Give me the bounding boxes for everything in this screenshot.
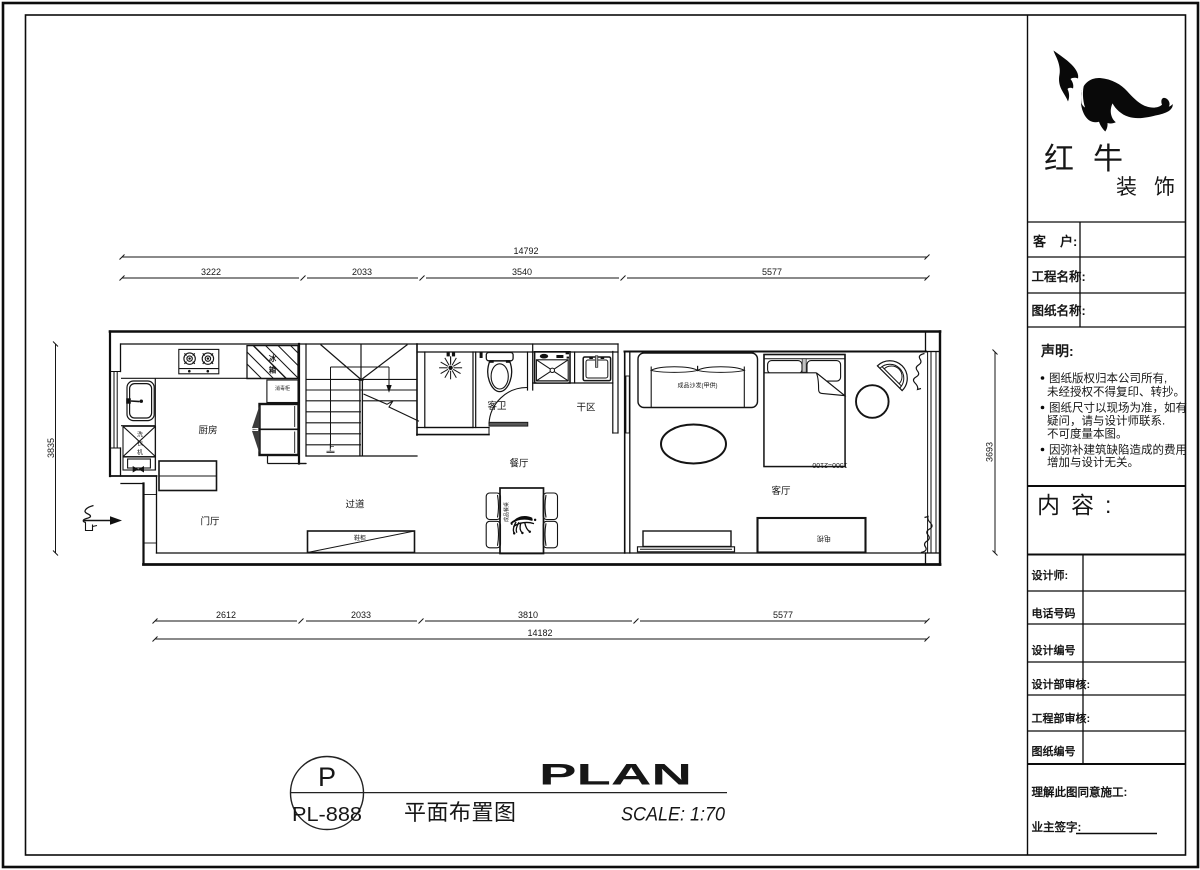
- svg-text:工程名称:: 工程名称:: [1032, 269, 1086, 284]
- svg-text:3540: 3540: [512, 267, 532, 277]
- svg-text:设计编号: 设计编号: [1032, 643, 1076, 657]
- svg-text:2033: 2033: [352, 267, 372, 277]
- svg-text:因弥补建筑缺陷造成的费用: 因弥补建筑缺陷造成的费用: [1049, 443, 1187, 457]
- svg-text:箱: 箱: [269, 365, 277, 375]
- svg-text:声明:: 声明:: [1040, 343, 1074, 359]
- svg-text:5577: 5577: [762, 267, 782, 277]
- svg-text:3835: 3835: [46, 438, 56, 458]
- svg-text:3693: 3693: [985, 442, 995, 462]
- svg-text:上: 上: [326, 443, 335, 453]
- svg-text:设计部审核:: 设计部审核:: [1032, 677, 1091, 691]
- svg-text:消毒柜: 消毒柜: [275, 385, 290, 392]
- svg-text:2033: 2033: [351, 610, 371, 620]
- svg-text:鞋柜: 鞋柜: [354, 534, 366, 542]
- svg-text:PL-888: PL-888: [292, 804, 362, 826]
- svg-text:理解此图同意施工:: 理解此图同意施工:: [1032, 785, 1128, 799]
- svg-text:餐厅: 餐厅: [509, 458, 529, 470]
- svg-text:内容:: 内容:: [1037, 492, 1122, 518]
- svg-text:图纸编号: 图纸编号: [1032, 744, 1076, 758]
- svg-text:门厅: 门厅: [200, 516, 220, 528]
- svg-text:电话号码: 电话号码: [1032, 606, 1076, 620]
- svg-text:厨房: 厨房: [198, 425, 217, 437]
- svg-text:红牛: 红牛: [1044, 143, 1142, 176]
- svg-text:1500=2100: 1500=2100: [812, 461, 847, 468]
- svg-text:业主签字:: 业主签字:: [1032, 820, 1082, 834]
- svg-text:图纸名称:: 图纸名称:: [1032, 303, 1086, 318]
- svg-text:冰: 冰: [269, 353, 277, 363]
- svg-text:机: 机: [137, 449, 143, 457]
- svg-text:客: 客: [1033, 234, 1047, 249]
- svg-text:3222: 3222: [201, 267, 221, 277]
- svg-text:工程部审核:: 工程部审核:: [1032, 711, 1091, 725]
- svg-text:图纸版权归本公司所有,: 图纸版权归本公司所有,: [1049, 371, 1167, 385]
- svg-text:成品餐桌: 成品餐桌: [503, 502, 510, 522]
- svg-text:14182: 14182: [527, 628, 552, 638]
- svg-text:图纸尺寸以现场为准，如有: 图纸尺寸以现场为准，如有: [1049, 401, 1187, 415]
- svg-text:14792: 14792: [513, 246, 538, 256]
- svg-text:装饰: 装饰: [1116, 176, 1192, 199]
- svg-text:3810: 3810: [518, 610, 538, 620]
- svg-text:5577: 5577: [773, 610, 793, 620]
- svg-text:P: P: [318, 762, 336, 792]
- svg-text:增加与设计无关。: 增加与设计无关。: [1047, 455, 1139, 469]
- svg-text:客卫: 客卫: [487, 400, 507, 412]
- svg-text:电视: 电视: [817, 535, 831, 544]
- svg-text:2612: 2612: [216, 610, 236, 620]
- svg-text:衣: 衣: [137, 440, 143, 448]
- svg-text:SCALE: 1:70: SCALE: 1:70: [621, 804, 725, 826]
- svg-text:不可度量本图。: 不可度量本图。: [1047, 427, 1128, 441]
- svg-text:过道: 过道: [345, 499, 365, 511]
- svg-text:未经授权不得复印、转抄。: 未经授权不得复印、转抄。: [1047, 385, 1185, 399]
- svg-text:设计师:: 设计师:: [1032, 568, 1069, 582]
- svg-text:成品沙发(甲供): 成品沙发(甲供): [678, 382, 718, 390]
- svg-text:PLAN: PLAN: [539, 759, 692, 792]
- svg-text:干区: 干区: [576, 403, 596, 414]
- svg-text:平面布置图: 平面布置图: [404, 800, 517, 825]
- svg-text:疑问，请与设计师联系.: 疑问，请与设计师联系.: [1047, 414, 1165, 428]
- svg-text:户:: 户:: [1060, 234, 1077, 249]
- svg-text:客厅: 客厅: [771, 485, 791, 497]
- svg-text:洗: 洗: [137, 431, 143, 439]
